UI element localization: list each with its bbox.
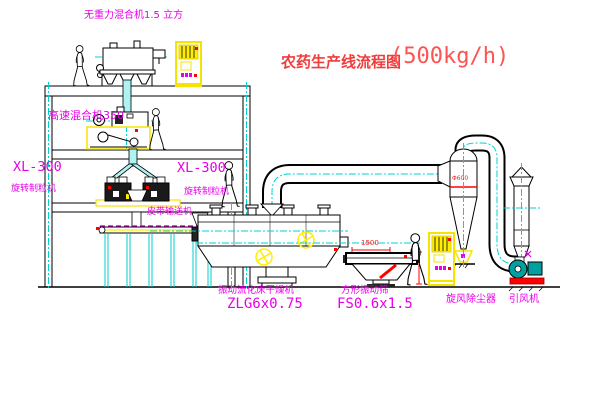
label-cyclone: 旋风除尘器 [446, 295, 496, 305]
granulator-discharge-chute [132, 212, 141, 227]
duct-funnel [261, 204, 283, 216]
gravity-free-mixer-machine [97, 41, 166, 86]
label-high-speed-mixer: 高速混合机350 [48, 110, 124, 121]
label-fan: 引风机 [509, 295, 539, 305]
diagram-title: 农药生产线流程图 [281, 51, 401, 72]
label-sieve-name: 方形振动筛 [341, 286, 389, 296]
label-dryer-model: ZLG6x0.75 [227, 297, 303, 311]
rotary-granulator-units [105, 177, 169, 201]
person-figure [150, 109, 166, 150]
person-figure [74, 46, 90, 86]
dimension-sieve-length: 1500 [361, 240, 379, 247]
diagram-title-capacity: (500kg/h) [390, 44, 509, 69]
dimension-cyclone-dia: Φ600 [452, 176, 468, 182]
label-sieve-model: FS0.6x1.5 [337, 297, 413, 311]
label-granulator-left-name: 旋转制粒机 [11, 185, 56, 194]
label-granulator-left-model: XL-300 [13, 161, 62, 175]
label-dryer-name: 振动流化床干燥机 [218, 286, 294, 296]
vibrating-sieve-machine [343, 247, 422, 287]
label-gravity-free-mixer: 无重力混合机1.5 立方 [84, 11, 183, 21]
label-granulator-mid-name: 旋转制粒机 [184, 188, 229, 197]
label-belt-conveyor: 皮带输送机 [147, 208, 192, 217]
label-granulator-mid-model: XL-300 [177, 162, 226, 176]
dryer-exhaust-duct [272, 174, 442, 208]
process-flow-diagram: 农药生产线流程图 (500kg/h) 无重力混合机1.5 立方 高速混合机350… [0, 0, 600, 403]
control-cabinet-top [176, 42, 201, 86]
control-cabinet-bottom [429, 233, 454, 285]
